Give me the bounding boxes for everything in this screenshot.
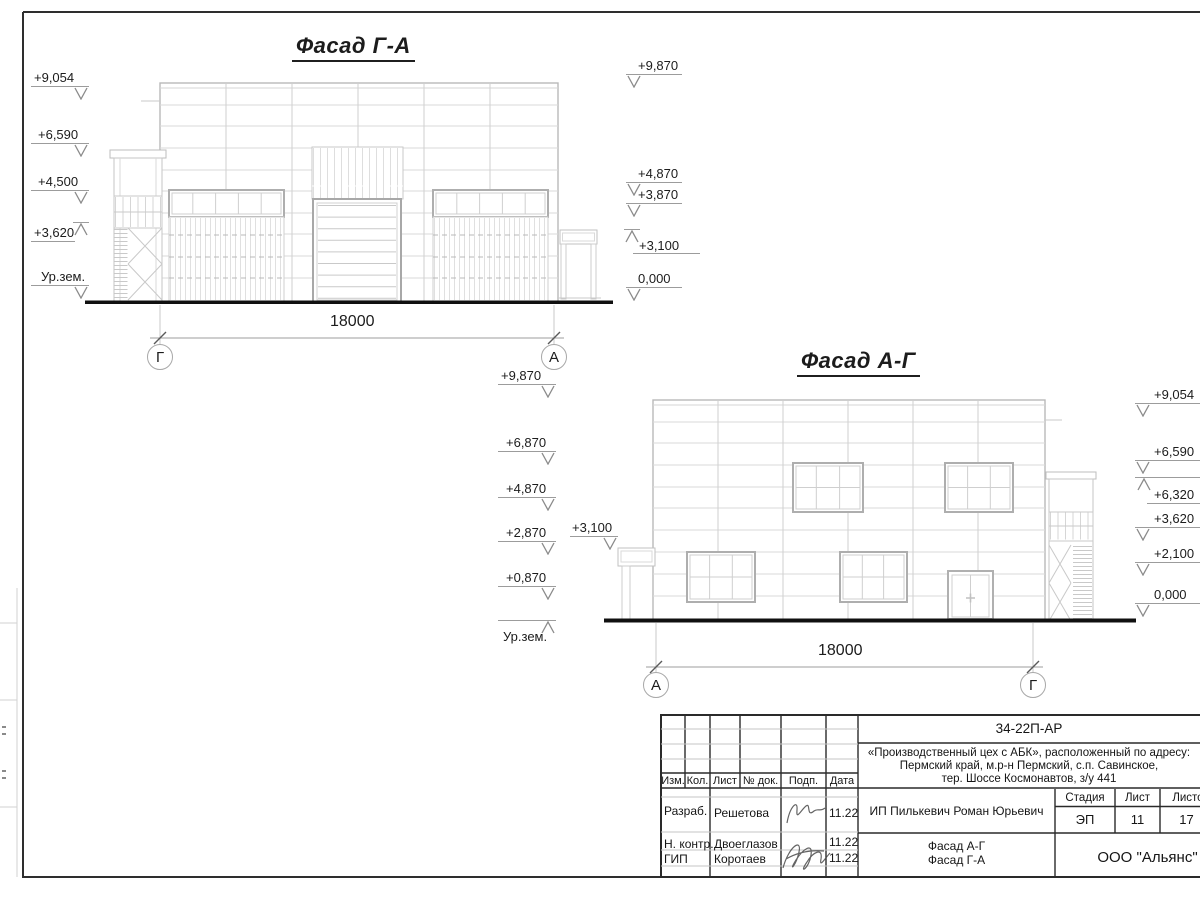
stamp-stage-label: Стадия [1055, 792, 1115, 804]
stamp-col-data: Дата [826, 775, 858, 787]
stamp-sheets-label: Листов [1160, 792, 1200, 804]
facade-ga-axis-left: Г [152, 349, 168, 366]
stamp-date: 11.22 [829, 835, 858, 849]
stamp-name: Коротаев [714, 852, 766, 866]
stamp-col-kol: Кол. [685, 775, 710, 787]
stamp-name: Двоеглазов [714, 837, 778, 851]
elevation-arrow-down-icon [626, 288, 642, 301]
stamp-role: ГИП [664, 852, 688, 866]
elevation-arrow-down-icon [540, 542, 556, 555]
stamp-drawing-title: Фасад А-Г [858, 839, 1055, 853]
stamp-role: Н. контр. [664, 837, 714, 851]
elevation-arrow-down-icon [73, 191, 89, 204]
elevation-arrow-down-icon [1135, 563, 1151, 576]
elevation-arrow-down-icon [602, 537, 618, 550]
facade-ga-dimension: 18000 [330, 313, 375, 331]
facade-ag-axis-right: Г [1025, 677, 1041, 694]
elevation-arrow-down-icon [540, 452, 556, 465]
stamp-address-line: тер. Шоссе Космонавтов, з/у 441 [858, 773, 1200, 785]
facade-ga-axis-right: А [546, 349, 562, 366]
elevation-arrow-down-icon [73, 286, 89, 299]
stamp-date: 11.22 [829, 851, 858, 865]
margin-block [0, 588, 17, 877]
stamp-sheets-value: 17 [1160, 812, 1200, 827]
stamp-address-line: Пермский край, м.р-н Пермский, с.п. Сави… [858, 760, 1200, 772]
stamp-doc-code: 34-22П-АР [858, 721, 1200, 736]
margin-marks [2, 726, 6, 779]
stamp-client: ИП Пилькевич Роман Юрьевич [858, 804, 1055, 818]
stamp-drawing-title: Фасад Г-А [858, 853, 1055, 867]
elevation-arrow-down-icon [540, 498, 556, 511]
stamp-address-line: «Производственный цех с АБК», расположен… [858, 747, 1200, 759]
drawing-sheet: Фасад Г-А 18000 Г А +9,054 +6,590 +4,500… [0, 0, 1200, 900]
elevation-arrow-down-icon [540, 385, 556, 398]
facade-ag-axis-left: А [648, 677, 664, 694]
stamp-role: Разраб. [664, 804, 707, 818]
elevation-arrow-down-icon [1135, 604, 1151, 617]
elevation-arrow-down-icon [626, 204, 642, 217]
elevation-arrow-down-icon [73, 87, 89, 100]
facade-ag-drawing [604, 400, 1136, 698]
elevation-arrow-down-icon [540, 587, 556, 600]
stamp-name: Решетова [714, 806, 769, 820]
stamp-col-list: Лист [710, 775, 740, 787]
stamp-col-podp: Подп. [781, 775, 826, 787]
facade-ga-title: Фасад Г-А [292, 33, 415, 62]
stamp-company: ООО "Альянс" [1055, 849, 1200, 866]
stamp-date: 11.22 [829, 806, 858, 820]
stamp-col-doc: № док. [740, 775, 781, 787]
elevation-arrow-down-icon [1135, 461, 1151, 474]
stamp-stage-value: ЭП [1055, 812, 1115, 827]
elevation-arrow-down-icon [73, 144, 89, 157]
elevation-arrow-down-icon [626, 75, 642, 88]
stamp-col-izm: Изм. [661, 775, 685, 787]
stamp-sheet-value: 11 [1115, 812, 1160, 827]
elevation-arrow-down-icon [1135, 528, 1151, 541]
elevation-arrow-down-icon [1135, 404, 1151, 417]
stamp-sheet-label: Лист [1115, 792, 1160, 804]
facade-ag-title: Фасад А-Г [797, 348, 920, 377]
facade-ag-dimension: 18000 [818, 642, 863, 660]
